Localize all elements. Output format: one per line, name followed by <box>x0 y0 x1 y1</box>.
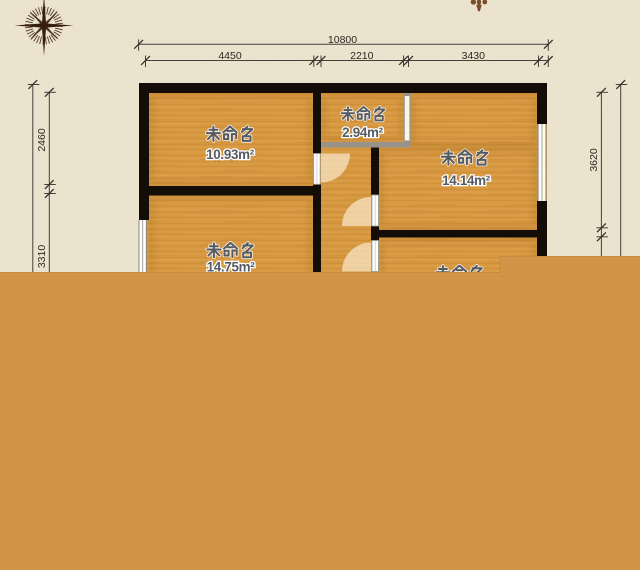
svg-text:10.93m²: 10.93m² <box>206 147 255 162</box>
svg-text:4450: 4450 <box>218 50 242 62</box>
svg-text:10800: 10800 <box>328 34 357 46</box>
svg-text:2210: 2210 <box>350 50 374 62</box>
svg-text:2.94m²: 2.94m² <box>342 125 383 140</box>
svg-text:3430: 3430 <box>462 50 486 62</box>
svg-text:14.14m²: 14.14m² <box>442 173 491 188</box>
svg-text:3620: 3620 <box>588 148 600 172</box>
svg-text:3310: 3310 <box>36 245 48 269</box>
svg-text:2460: 2460 <box>36 128 48 152</box>
